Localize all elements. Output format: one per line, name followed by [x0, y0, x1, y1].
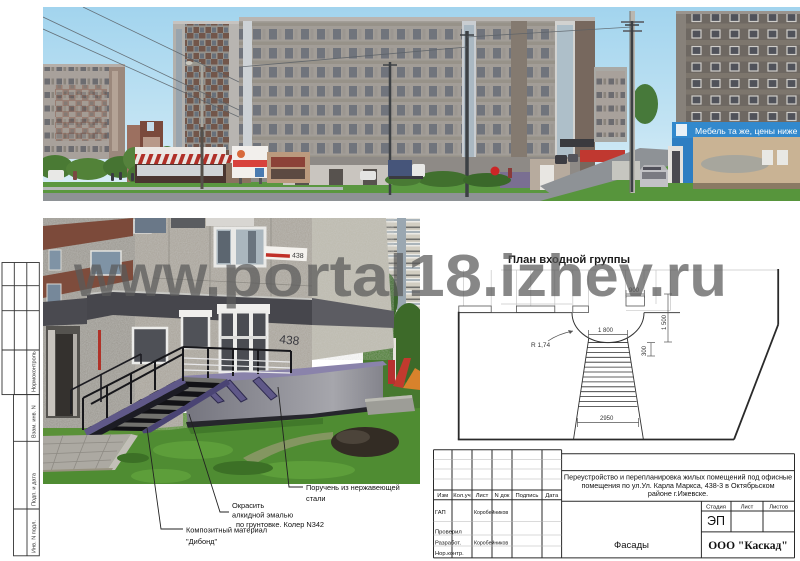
svg-text:районе г.Ижевске.: районе г.Ижевске.: [648, 489, 708, 498]
svg-text:ГАП: ГАП: [435, 510, 446, 516]
svg-text:Изм: Изм: [437, 493, 448, 499]
svg-text:900: 900: [629, 288, 640, 294]
svg-text:Инв. N подл.: Инв. N подл.: [32, 520, 38, 553]
svg-text:ЭП: ЭП: [707, 514, 725, 528]
svg-text:Лист: Лист: [476, 493, 489, 499]
svg-text:Взам. инв. N: Взам. инв. N: [32, 405, 38, 438]
svg-text:Нор.контр.: Нор.контр.: [435, 551, 464, 557]
svg-text:R 1,74: R 1,74: [531, 342, 551, 349]
svg-text:N док: N док: [495, 493, 510, 499]
svg-text:Композитный материал: Композитный материал: [186, 526, 267, 535]
svg-text:Окрасить: Окрасить: [232, 501, 264, 510]
svg-text:алкидной эмалью: алкидной эмалью: [232, 511, 294, 520]
svg-text:Кол.уч: Кол.уч: [453, 493, 470, 499]
svg-text:2950: 2950: [600, 416, 614, 422]
svg-text:Дата: Дата: [545, 493, 559, 499]
svg-text:Коробейников: Коробейников: [474, 509, 508, 516]
svg-text:438: 438: [292, 252, 304, 260]
svg-text:"Дибонд": "Дибонд": [186, 537, 217, 546]
svg-text:1 500: 1 500: [662, 314, 668, 330]
svg-text:Фасады: Фасады: [614, 540, 649, 551]
svg-text:1 800: 1 800: [598, 328, 614, 334]
svg-text:Листов: Листов: [769, 505, 788, 511]
svg-text:Поручень из нержавеющей: Поручень из нержавеющей: [306, 483, 400, 492]
svg-text:438: 438: [279, 332, 301, 348]
svg-text:Разработ.: Разработ.: [435, 541, 461, 547]
svg-text:Стадия: Стадия: [706, 505, 726, 511]
svg-text:300: 300: [642, 345, 648, 356]
svg-text:Мебель та же, цены ниже: Мебель та же, цены ниже: [695, 126, 798, 136]
svg-text:Подпись: Подпись: [516, 493, 539, 499]
svg-text:Проверил: Проверил: [435, 530, 462, 536]
svg-text:ООО "Каскад": ООО "Каскад": [708, 540, 788, 552]
svg-text:Нормоконтроль: Нормоконтроль: [32, 351, 38, 392]
svg-text:Лист: Лист: [741, 505, 754, 511]
svg-text:стали: стали: [306, 494, 326, 503]
svg-text:Подп. и дата: Подп. и дата: [32, 472, 38, 506]
svg-text:Коробейников: Коробейников: [474, 540, 508, 547]
svg-text:План входной группы: План входной группы: [508, 254, 630, 266]
